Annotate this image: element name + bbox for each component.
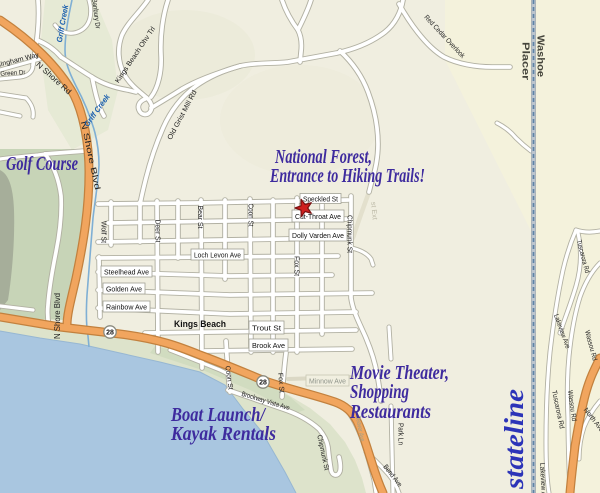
svg-text:Golden Ave: Golden Ave xyxy=(106,284,142,293)
svg-text:Fox St: Fox St xyxy=(276,373,284,393)
svg-text:Fox St: Fox St xyxy=(293,256,300,276)
svg-text:Entrance to Hiking Trails!: Entrance to Hiking Trails! xyxy=(269,165,425,187)
svg-text:Lakeview Ave: Lakeview Ave xyxy=(538,463,547,493)
svg-text:Bear St: Bear St xyxy=(196,206,203,229)
svg-text:Speckled St: Speckled St xyxy=(303,194,339,203)
svg-text:N Shore Blvd: N Shore Blvd xyxy=(53,293,62,339)
svg-text:28: 28 xyxy=(259,380,267,387)
svg-text:Dolly Varden Ave: Dolly Varden Ave xyxy=(292,231,344,240)
svg-text:Brook Ave: Brook Ave xyxy=(252,341,285,350)
svg-text:Loch Levon Ave: Loch Levon Ave xyxy=(194,250,241,259)
svg-text:Kings Beach: Kings Beach xyxy=(174,319,226,329)
svg-text:Deer St: Deer St xyxy=(154,220,161,243)
svg-text:Restaurants: Restaurants xyxy=(349,401,431,423)
svg-text:stateline: stateline xyxy=(499,389,529,490)
svg-text:Placer: Placer xyxy=(520,42,531,80)
svg-text:Rainbow Ave: Rainbow Ave xyxy=(106,302,147,311)
svg-text:Chipmunk St: Chipmunk St xyxy=(346,215,353,253)
svg-text:Kayak Rentals: Kayak Rentals xyxy=(170,423,276,445)
svg-text:Washoe: Washoe xyxy=(535,35,546,77)
svg-text:Shopping: Shopping xyxy=(350,381,409,403)
svg-text:Coon St: Coon St xyxy=(247,204,254,227)
svg-text:Trout St: Trout St xyxy=(252,323,282,332)
svg-text:Golf Course: Golf Course xyxy=(6,153,78,175)
svg-text:Minnow Ave: Minnow Ave xyxy=(309,379,346,386)
svg-text:Wolf St: Wolf St xyxy=(100,221,107,243)
svg-text:Park Ln: Park Ln xyxy=(397,423,404,445)
svg-text:Steelhead Ave: Steelhead Ave xyxy=(104,267,149,276)
svg-text:28: 28 xyxy=(106,330,114,337)
